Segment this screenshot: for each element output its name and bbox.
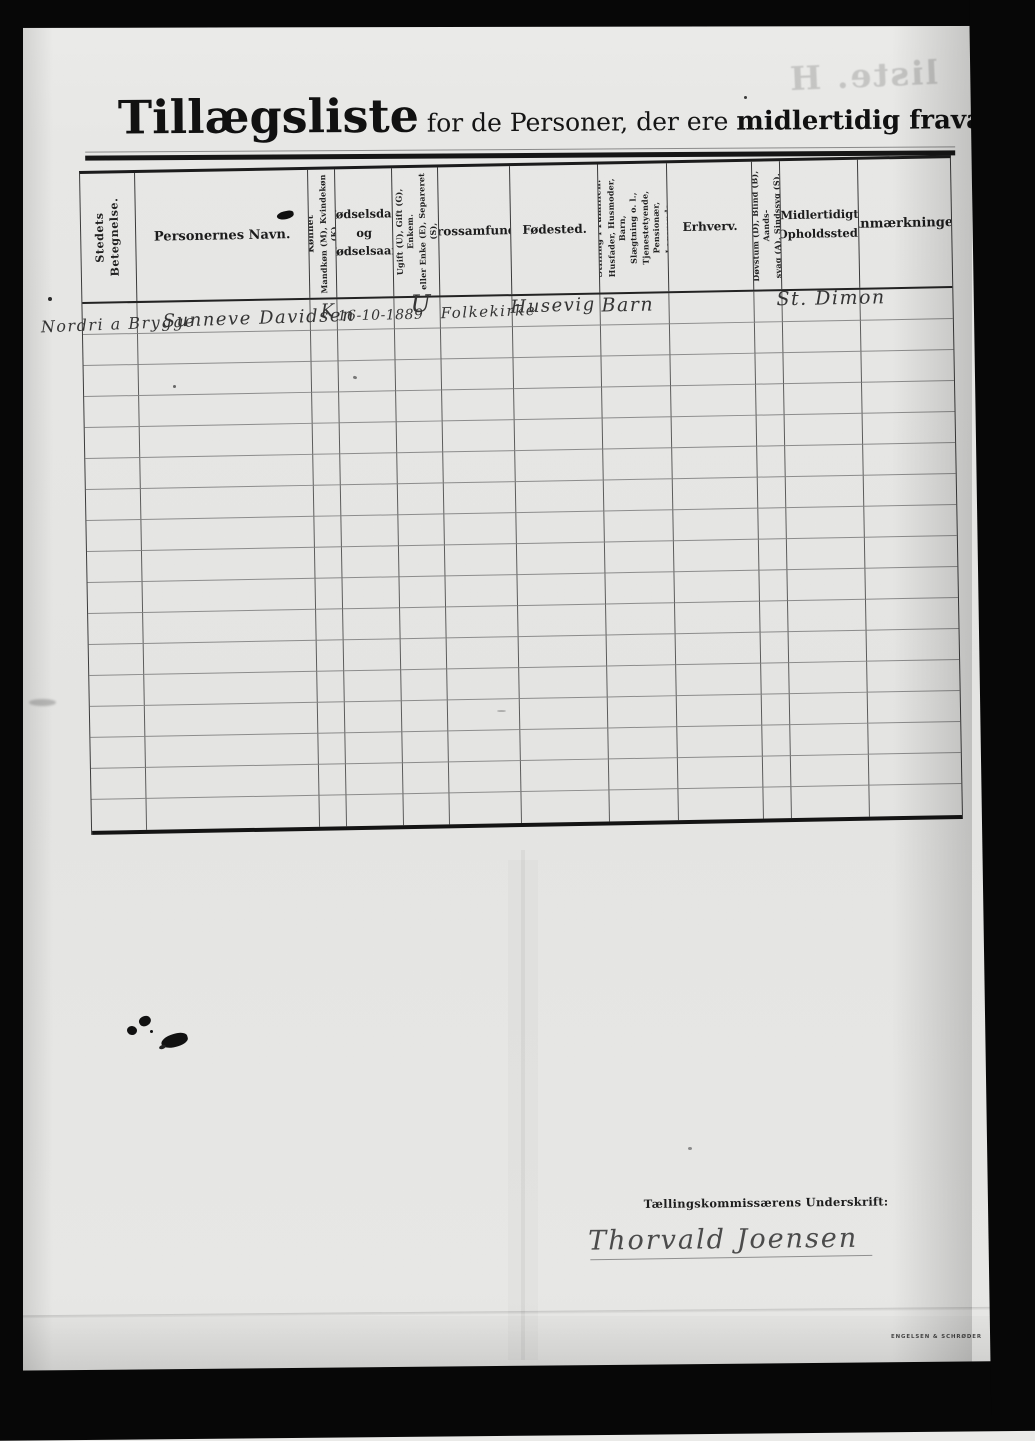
table-cell xyxy=(519,666,608,699)
table-cell xyxy=(861,350,954,383)
table-cell xyxy=(313,454,341,485)
table-cell xyxy=(862,381,955,414)
table-cell xyxy=(601,355,671,387)
table-cell xyxy=(316,609,344,640)
header-sublabel: Ugift (U), Gift (G), Enkem. xyxy=(393,171,417,293)
table-cell xyxy=(678,788,764,821)
table-cell xyxy=(446,606,519,638)
table-cell xyxy=(449,761,522,793)
table-cell xyxy=(442,358,515,390)
ink-blot xyxy=(137,1014,152,1029)
table-cell xyxy=(340,422,398,454)
paper-crease xyxy=(0,1306,1035,1318)
table-cell xyxy=(790,693,869,725)
header-anmaerkninger: Anmærkninger xyxy=(858,158,952,288)
table-cell xyxy=(868,722,961,755)
header-stilling-i-familien: Stilling i Familien: Husfader, Husmoder,… xyxy=(598,163,669,292)
table-cell xyxy=(516,480,605,513)
table-cell xyxy=(339,360,397,392)
table-cell xyxy=(865,536,958,569)
ink-speck xyxy=(688,1147,692,1150)
table-cell xyxy=(319,764,347,795)
table-cell xyxy=(90,737,146,769)
paper-fold xyxy=(521,850,525,1360)
table-cell xyxy=(517,573,606,606)
table-cell xyxy=(602,386,672,418)
signature-handwriting: Thorvald Joensen xyxy=(588,1222,920,1256)
table-cell xyxy=(603,417,673,449)
table-cell xyxy=(447,637,520,669)
table-cell xyxy=(398,483,445,515)
table-cell xyxy=(144,672,318,706)
table-cell xyxy=(868,691,961,724)
table-cell xyxy=(341,484,399,516)
table-cell xyxy=(762,694,791,726)
document-header: Tillægsliste for de Personer, der ere mi… xyxy=(85,85,955,160)
header-midlertidigt-opholdssted: Midlertidigt Opholdssted. xyxy=(780,160,860,289)
table-cell xyxy=(785,414,864,446)
table-cell xyxy=(867,629,960,662)
header-label: Fødested. xyxy=(522,222,587,237)
table-cell xyxy=(145,703,319,737)
table-cell xyxy=(344,639,402,671)
header-foedselsdag: Fødselsdag og Fødselsaar. xyxy=(335,168,394,297)
table-cell xyxy=(311,330,339,361)
table-cell xyxy=(140,424,314,458)
table-cell xyxy=(343,608,401,640)
table-cell xyxy=(760,601,789,633)
ink-speck xyxy=(159,1044,167,1050)
table-cell xyxy=(144,641,318,675)
table-cell xyxy=(786,476,865,508)
entry-birthplace: Husevig xyxy=(510,294,596,318)
table-cell xyxy=(139,393,313,427)
table-cell xyxy=(789,631,868,663)
table-cell xyxy=(676,633,762,666)
table-cell xyxy=(91,768,147,800)
pencil-smear xyxy=(29,699,56,706)
table-cell xyxy=(759,539,788,571)
table-cell xyxy=(520,728,609,761)
table-cell xyxy=(516,511,605,544)
header-sublabel: Husfader, Husmoder, Barn, xyxy=(605,167,629,289)
table-cell xyxy=(521,759,610,792)
table-cell xyxy=(604,479,674,511)
table-cell xyxy=(398,514,445,546)
table-cell xyxy=(513,326,602,359)
table-cell xyxy=(403,793,450,825)
title-subtitle: for de Personer, der ere xyxy=(419,107,737,138)
table-cell xyxy=(443,420,516,452)
table-cell xyxy=(785,445,864,477)
table-cell xyxy=(608,727,678,759)
header-label: Trossamfund. xyxy=(438,223,512,239)
table-cell xyxy=(519,635,608,668)
table-cell xyxy=(605,541,675,573)
entry-family-position: Barn xyxy=(601,294,654,317)
ink-speck xyxy=(173,385,176,388)
table-cell xyxy=(677,726,763,759)
header-label: Personernes Navn. xyxy=(154,227,291,244)
header-label: Anmærkninger xyxy=(858,214,952,231)
table-cell xyxy=(670,354,756,387)
table-cell xyxy=(317,640,345,671)
ink-speck xyxy=(744,96,747,99)
table-cell xyxy=(339,391,397,423)
table-cell xyxy=(514,387,603,420)
table-cell xyxy=(791,786,870,818)
table-cell xyxy=(672,416,758,449)
table-cell xyxy=(139,362,313,396)
table-cell xyxy=(669,292,755,325)
table-cell xyxy=(673,509,759,542)
page-title: Tillægsliste for de Personer, der ere mi… xyxy=(85,85,955,144)
table-cell xyxy=(864,474,957,507)
table-cell xyxy=(141,517,315,551)
header-foedested: Fødested. xyxy=(510,165,600,295)
table-cell xyxy=(763,756,792,788)
table-cell xyxy=(141,486,315,520)
table-cell xyxy=(518,604,607,637)
table-cell xyxy=(445,575,518,607)
table-cell xyxy=(143,579,317,613)
table-cell xyxy=(403,762,450,794)
table-cell xyxy=(147,796,321,830)
table-cell xyxy=(312,392,340,423)
header-sublabel: Mandkøn (M), Kvindekøn (K) xyxy=(317,172,338,294)
header-erhverv: Erhverv. xyxy=(667,162,754,292)
table-cell xyxy=(787,538,866,570)
table-cell xyxy=(344,670,402,702)
table-cell xyxy=(86,520,142,552)
table-cell xyxy=(145,734,319,768)
table-cell xyxy=(606,603,676,635)
table-cell xyxy=(757,415,786,447)
table-cell xyxy=(314,485,342,516)
table-cell xyxy=(867,660,960,693)
table-cell xyxy=(789,662,868,694)
table-cell xyxy=(444,482,517,514)
scanned-census-sheet: { "page": { "title": { "main": "Tillægsl… xyxy=(0,0,1035,1400)
table-cell xyxy=(761,663,790,695)
table-cell xyxy=(92,799,148,831)
table-cell xyxy=(673,478,759,511)
table-cell xyxy=(448,730,521,762)
scan-border-right xyxy=(969,0,1035,1415)
table-cell xyxy=(757,446,786,478)
table-cell xyxy=(674,540,760,573)
table-cell xyxy=(88,613,144,645)
table-cell xyxy=(788,600,867,632)
entry-sex: K xyxy=(320,300,335,321)
header-label: Erhverv. xyxy=(682,219,737,234)
table-cell xyxy=(86,489,142,521)
table-cell xyxy=(755,322,784,354)
header-label: Midlertidigt Opholdssted. xyxy=(780,205,860,244)
table-cell xyxy=(513,357,602,390)
table-cell xyxy=(761,632,790,664)
table-cell xyxy=(605,572,675,604)
table-header-row: Stedets Betegnelse. Personernes Navn. Kø… xyxy=(80,158,952,302)
table-cell xyxy=(138,331,312,365)
table-cell xyxy=(84,396,140,428)
table-cell xyxy=(520,697,609,730)
table-cell xyxy=(397,421,444,453)
table-cell xyxy=(759,570,788,602)
table-cell xyxy=(758,477,787,509)
table-cell xyxy=(869,753,962,786)
table-cell xyxy=(515,449,604,482)
table-cell xyxy=(401,669,448,701)
header-sublabel: Tjenestetyende, Pensionær, xyxy=(639,166,663,288)
table-cell xyxy=(443,451,516,483)
title-main: Tillægsliste xyxy=(118,89,419,145)
ink-blot xyxy=(126,1025,137,1036)
table-cell xyxy=(444,513,517,545)
table-cell xyxy=(601,324,671,356)
entry-marital-status: U xyxy=(410,290,432,318)
table-cell xyxy=(672,447,758,480)
table-cell xyxy=(345,701,403,733)
table-cell xyxy=(89,675,145,707)
table-cell xyxy=(677,695,763,728)
ink-speck xyxy=(150,1030,153,1033)
table-cell xyxy=(607,665,677,697)
header-label: Døvstum (D), Blind (B), Aands- xyxy=(752,164,773,286)
table-cell xyxy=(402,700,449,732)
table-cell xyxy=(340,453,398,485)
table-cell xyxy=(312,361,340,392)
table-cell xyxy=(85,458,141,490)
table-cell xyxy=(865,567,958,600)
table-cell xyxy=(790,724,869,756)
table-cell xyxy=(342,577,400,609)
table-cell xyxy=(341,515,399,547)
table-cell xyxy=(441,327,514,359)
signature-label: Tællingskommissærens Underskrift: xyxy=(644,1194,920,1211)
scan-border-top xyxy=(0,0,1035,28)
table-cell xyxy=(515,418,604,451)
table-cell xyxy=(762,725,791,757)
table-cell xyxy=(671,385,757,418)
table-cell xyxy=(83,334,139,366)
table-cell xyxy=(88,582,144,614)
paper-fold-band xyxy=(508,860,538,1360)
table-cell xyxy=(90,706,146,738)
table-cell xyxy=(755,353,784,385)
table-cell xyxy=(401,638,448,670)
table-cell xyxy=(442,389,515,421)
table-cell xyxy=(445,544,518,576)
table-cell xyxy=(866,598,959,631)
table-cell xyxy=(784,383,863,415)
table-cell xyxy=(313,423,341,454)
header-sublabel: eller Enke (E), Separeret (S), xyxy=(416,170,440,292)
table-cell xyxy=(146,765,320,799)
table-cell xyxy=(317,671,345,702)
table-cell xyxy=(338,329,396,361)
table-cell xyxy=(316,578,344,609)
table-cell xyxy=(603,448,673,480)
scan-border-bottom xyxy=(0,1360,1035,1441)
table-cell xyxy=(395,328,442,360)
table-cell xyxy=(87,551,143,583)
table-cell xyxy=(787,569,866,601)
signature-block: Tællingskommissærens Underskrift: Thorva… xyxy=(560,1194,921,1260)
table-cell xyxy=(396,359,443,391)
table-cell xyxy=(863,443,956,476)
table-cell xyxy=(791,755,870,787)
table-cell xyxy=(400,607,447,639)
table-cell xyxy=(346,763,404,795)
header-label: Fødselsdag og Fødselsaar. xyxy=(335,204,394,262)
table-cell xyxy=(675,602,761,635)
header-label: Stedets Betegnelse. xyxy=(92,176,124,299)
table-cell xyxy=(399,576,446,608)
table-cell xyxy=(674,571,760,604)
table-cell xyxy=(670,323,756,356)
table-cell xyxy=(399,545,446,577)
table-cell xyxy=(869,784,962,817)
table-body xyxy=(82,288,962,831)
header-aegteskabelig-stilling: Ægteskabelig Stilling. Ugift (U), Gift (… xyxy=(392,167,440,296)
table-cell xyxy=(84,365,140,397)
table-cell xyxy=(140,455,314,489)
table-cell xyxy=(143,610,317,644)
scan-border-left xyxy=(0,0,23,1405)
table-cell xyxy=(346,794,404,826)
header-koennet: Kønnet Mandkøn (M), Kvindekøn (K) xyxy=(308,169,337,297)
header-stedets-betegnelse: Stedets Betegnelse. xyxy=(80,173,137,302)
table-cell xyxy=(676,664,762,697)
table-cell xyxy=(609,758,679,790)
entry-temporary-residence: St. Dimon xyxy=(776,286,886,310)
table-cell xyxy=(315,547,343,578)
table-cell xyxy=(521,790,610,823)
table-cell xyxy=(864,505,957,538)
ink-dot xyxy=(48,297,52,301)
table-cell xyxy=(342,546,400,578)
table-cell xyxy=(786,507,865,539)
table-cell xyxy=(517,542,606,575)
table-cell xyxy=(89,644,145,676)
table-cell xyxy=(678,757,764,790)
table-cell xyxy=(85,427,141,459)
ink-smudge xyxy=(276,209,294,221)
table-cell xyxy=(604,510,674,542)
table-cell xyxy=(345,732,403,764)
table-cell xyxy=(763,787,792,819)
table-cell xyxy=(396,390,443,422)
table-cell xyxy=(756,384,785,416)
table-cell xyxy=(609,789,679,821)
table-cell xyxy=(863,412,956,445)
table-cell xyxy=(447,668,520,700)
printer-imprint: ENGELSEN & SCHRØDER xyxy=(891,1333,982,1339)
table-cell xyxy=(402,731,449,763)
table-cell xyxy=(318,702,346,733)
header-trossamfund: Trossamfund. xyxy=(438,166,512,295)
table-cell xyxy=(861,319,954,352)
census-table: Stedets Betegnelse. Personernes Navn. Kø… xyxy=(79,155,963,835)
table-cell xyxy=(448,699,521,731)
table-cell xyxy=(608,696,678,728)
header-personernes-navn: Personernes Navn. xyxy=(135,170,310,301)
table-cell xyxy=(318,733,346,764)
pencil-smear xyxy=(497,710,506,712)
table-cell xyxy=(758,508,787,540)
table-cell xyxy=(607,634,677,666)
table-cell xyxy=(142,548,316,582)
table-cell xyxy=(397,452,444,484)
table-cell xyxy=(314,516,342,547)
header-doevstum: Døvstum (D), Blind (B), Aands- svag (A),… xyxy=(752,161,782,289)
table-cell xyxy=(783,321,862,353)
table-cell xyxy=(449,792,522,824)
table-cell xyxy=(319,795,347,826)
table-cell xyxy=(783,352,862,384)
